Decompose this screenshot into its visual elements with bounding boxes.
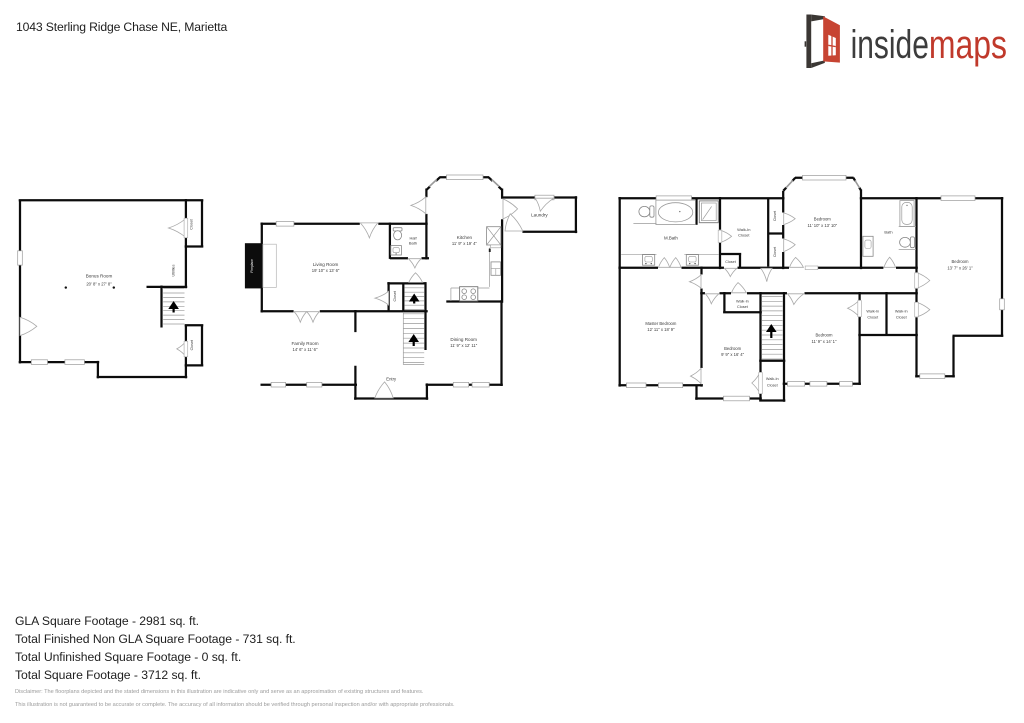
svg-text:Walk-In: Walk-In xyxy=(895,309,908,313)
svg-text:20' 8" x 27' 8": 20' 8" x 27' 8" xyxy=(86,282,112,287)
svg-text:Walk-In: Walk-In xyxy=(736,299,749,303)
svg-text:Closet: Closet xyxy=(773,247,777,257)
svg-text:Kitchen: Kitchen xyxy=(457,235,473,240)
svg-text:11' 10" x 13' 10": 11' 10" x 13' 10" xyxy=(807,223,837,228)
svg-text:Closet: Closet xyxy=(190,219,194,229)
svg-text:9' 9" x 16' 4": 9' 9" x 16' 4" xyxy=(721,352,744,357)
svg-text:Bonus Room: Bonus Room xyxy=(86,274,113,279)
svg-text:Bedroom: Bedroom xyxy=(952,259,970,264)
svg-text:Closet: Closet xyxy=(867,316,879,320)
svg-text:Closet: Closet xyxy=(737,305,749,309)
svg-text:Bedroom: Bedroom xyxy=(724,346,742,351)
svg-text:Walk-In: Walk-In xyxy=(737,227,750,232)
svg-text:Living Room: Living Room xyxy=(313,262,339,267)
svg-text:Master Bedroom: Master Bedroom xyxy=(645,321,676,326)
svg-text:19' 10" x 13' 6": 19' 10" x 13' 6" xyxy=(312,268,340,273)
svg-text:Family Room: Family Room xyxy=(291,341,318,346)
svg-text:Fireplace: Fireplace xyxy=(250,259,254,273)
svg-text:Closet: Closet xyxy=(725,260,735,264)
svg-text:Closet: Closet xyxy=(767,383,779,387)
svg-text:Bedroom: Bedroom xyxy=(816,333,834,338)
svg-text:Walk-In: Walk-In xyxy=(766,377,779,381)
svg-text:Closet: Closet xyxy=(190,340,194,350)
svg-text:maps: maps xyxy=(929,23,1007,67)
svg-text:12' 11" x 18' 9": 12' 11" x 18' 9" xyxy=(647,327,675,332)
svg-text:11' 9" x 12' 11": 11' 9" x 12' 11" xyxy=(450,343,478,348)
svg-text:M.Bath: M.Bath xyxy=(664,236,678,241)
svg-text:Closet: Closet xyxy=(738,233,750,238)
svg-text:inside: inside xyxy=(851,23,929,67)
svg-text:11' 9" x 14' 1": 11' 9" x 14' 1" xyxy=(812,339,837,344)
svg-text:Bath: Bath xyxy=(409,241,417,246)
svg-text:11' 9" x 19' 4": 11' 9" x 19' 4" xyxy=(452,241,477,246)
svg-text:Closet: Closet xyxy=(773,211,777,221)
svg-text:Laundry: Laundry xyxy=(531,212,548,217)
svg-text:Bedroom: Bedroom xyxy=(814,217,832,222)
svg-text:Entry: Entry xyxy=(386,377,397,382)
svg-text:14' 6" x 11' 6": 14' 6" x 11' 6" xyxy=(293,347,318,352)
svg-text:Closet: Closet xyxy=(896,316,908,320)
svg-text:Closet: Closet xyxy=(393,291,397,301)
svg-text:Dining Room: Dining Room xyxy=(450,337,477,342)
svg-text:Walk-In: Walk-In xyxy=(866,309,879,313)
svg-text:Bath: Bath xyxy=(884,230,892,235)
svg-text:Utilities: Utilities xyxy=(171,264,175,276)
svg-text:13' 7" x 26' 1": 13' 7" x 26' 1" xyxy=(947,266,973,271)
